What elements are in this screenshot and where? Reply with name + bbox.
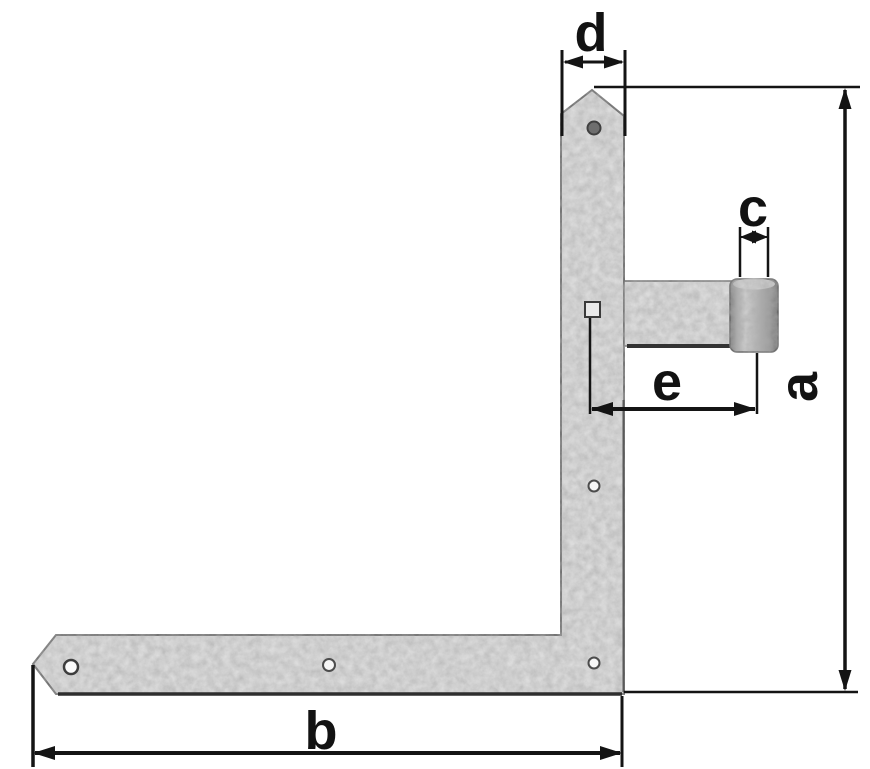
screw-hole-horizontal-mid	[323, 659, 335, 671]
arrowhead-right	[734, 402, 756, 416]
hinge-barrel	[730, 279, 778, 353]
arrowhead-right	[600, 746, 622, 760]
hinge-dimension-drawing: d c e a b	[0, 0, 870, 769]
dim-label-c: c	[738, 178, 768, 238]
barrel-top-cap	[733, 279, 775, 290]
arrowhead-bottom	[839, 670, 852, 691]
barrel-body	[730, 279, 778, 352]
screw-hole-horizontal-left	[64, 660, 78, 674]
metal-straps-group	[33, 90, 732, 694]
screw-hole-vertical-bottom	[589, 658, 600, 669]
dim-label-d: d	[575, 3, 608, 63]
dim-label-a: a	[769, 371, 829, 402]
bolt-head-top	[588, 122, 601, 135]
drawing-canvas: d c e a b	[0, 0, 870, 769]
dim-label-e: e	[652, 352, 682, 412]
arrowhead-left	[33, 746, 55, 760]
screw-hole-vertical-mid	[589, 481, 600, 492]
hinge-arm	[624, 281, 732, 346]
dim-label-b: b	[305, 701, 338, 761]
l-shaped-strap	[33, 90, 624, 694]
arrowhead-top	[839, 88, 852, 109]
square-bolt-hole	[585, 302, 600, 317]
